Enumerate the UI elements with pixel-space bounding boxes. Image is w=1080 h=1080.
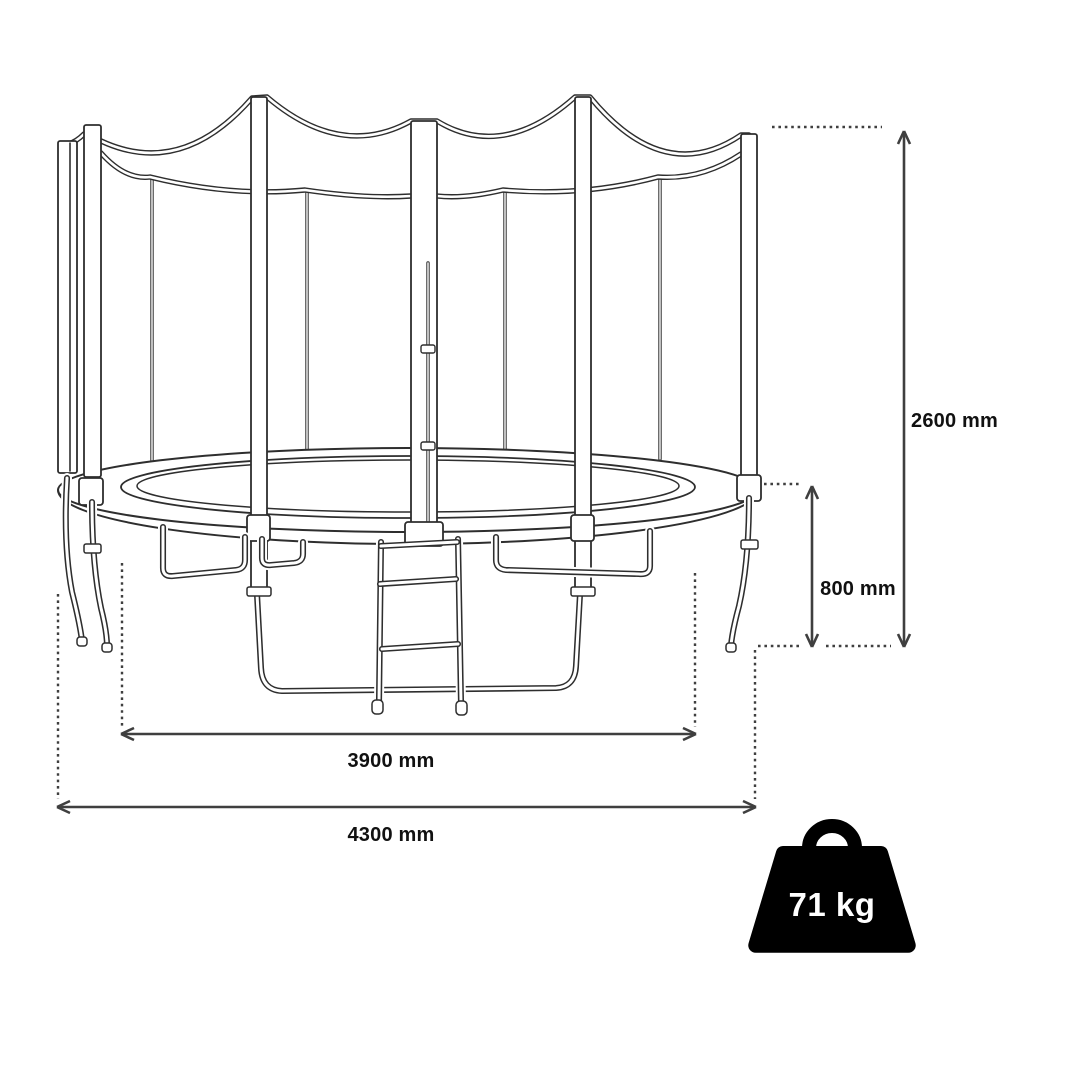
dimension-frame-height: [806, 486, 818, 647]
label-frame-height: 800 mm: [813, 578, 903, 601]
label-weight: 71 kg: [767, 886, 897, 924]
trampoline-dimension-diagram: 2600 mm 800 mm 3900 mm 4300 mm 71 kg: [0, 0, 1080, 1080]
label-total-height: 2600 mm: [911, 410, 998, 433]
dimension-outer-diameter: [57, 801, 756, 813]
net-top-rails: [68, 97, 749, 197]
trampoline-line-art: [0, 0, 1080, 1080]
label-inner-diameter: 3900 mm: [326, 750, 456, 773]
label-outer-diameter: 4300 mm: [326, 824, 456, 847]
dimension-inner-diameter: [121, 728, 696, 740]
dimension-total-height: [898, 131, 910, 647]
